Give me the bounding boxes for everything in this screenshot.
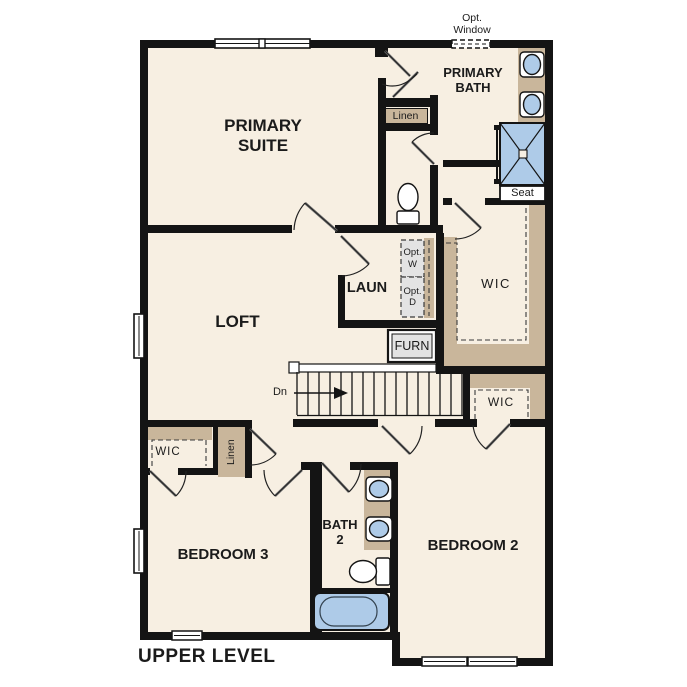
label-primary-suite: PRIMARY SUITE xyxy=(203,113,323,159)
wall xyxy=(392,632,400,666)
label-opt-washer: Opt. W xyxy=(401,241,424,276)
wic-bedroom2-shelf-top xyxy=(470,374,545,388)
wall xyxy=(140,468,150,475)
wall xyxy=(510,419,545,427)
label-wic-bedroom2: WIC xyxy=(477,395,525,410)
wall xyxy=(140,40,148,640)
wall xyxy=(443,160,500,167)
wic-primary-shelf-bottom xyxy=(444,344,545,366)
wall xyxy=(140,420,252,427)
label-opt-window: Opt. Window xyxy=(448,9,496,39)
label-wic-primary: WIC xyxy=(470,276,522,292)
label-bedroom2: BEDROOM 2 xyxy=(408,537,538,555)
wall xyxy=(310,588,390,593)
wall xyxy=(140,40,553,48)
wall xyxy=(378,98,438,107)
label-linen-bedroom3: Linen xyxy=(219,428,243,476)
primary-bath-vanity xyxy=(518,48,545,123)
wall xyxy=(140,225,292,233)
label-laundry: LAUN xyxy=(340,280,394,297)
label-opt-dryer: Opt. D xyxy=(401,279,424,315)
label-wic-bedroom3: WIC xyxy=(146,445,190,460)
wall xyxy=(245,420,252,478)
wall xyxy=(430,165,438,233)
wall xyxy=(436,233,444,372)
wall xyxy=(430,95,438,135)
label-stairs-down: Dn xyxy=(268,385,292,399)
wall xyxy=(140,632,400,640)
wall xyxy=(213,420,218,475)
wall xyxy=(375,46,388,57)
wall xyxy=(338,320,436,328)
wic-primary-shelf-left xyxy=(444,237,457,344)
wall xyxy=(463,374,470,420)
wall xyxy=(178,468,218,475)
wall xyxy=(436,366,553,374)
wall xyxy=(392,658,553,666)
wall xyxy=(443,198,452,205)
page-title: UPPER LEVEL xyxy=(138,645,368,669)
wall xyxy=(545,40,553,666)
wall xyxy=(378,124,435,131)
label-loft: LOFT xyxy=(205,311,270,333)
label-bedroom3: BEDROOM 3 xyxy=(158,546,288,564)
label-bath2: BATH 2 xyxy=(318,514,362,550)
floor-bedroom2-extension xyxy=(396,600,549,662)
label-primary-bath: PRIMARY BATH xyxy=(428,62,518,98)
wall xyxy=(435,419,477,427)
wic-bedroom3-shelf-top xyxy=(148,427,212,440)
wall xyxy=(390,462,398,632)
wall xyxy=(293,419,378,427)
wic-primary-shelf-right xyxy=(529,205,545,344)
wall xyxy=(335,225,443,233)
label-seat: Seat xyxy=(500,187,545,200)
label-linen-hall: Linen xyxy=(383,109,428,123)
wic-bedroom2-shelf-right xyxy=(530,388,545,420)
label-furnace: FURN xyxy=(390,331,434,361)
floor-plan: Opt. Window PRIMARY BATH PRIMARY SUITE L… xyxy=(0,0,687,687)
laundry-shelf-strip xyxy=(424,238,434,318)
